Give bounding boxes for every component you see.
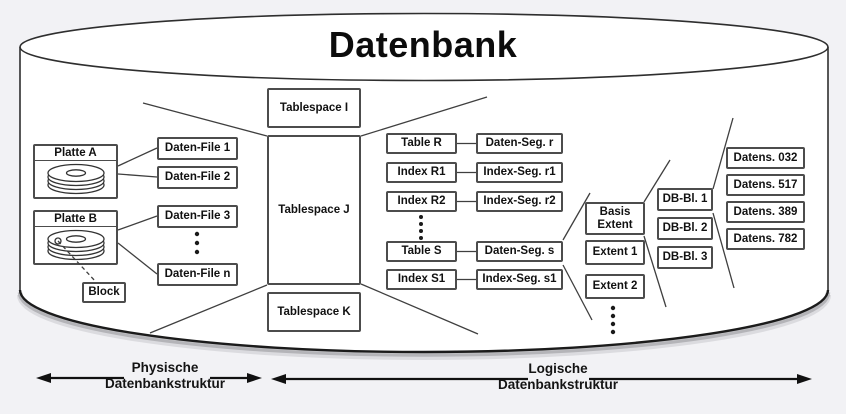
daten-file-1-box: Daten-File 1	[157, 137, 238, 160]
daten-file-2-box: Daten-File 2	[157, 166, 238, 189]
tablespace-j-box: Tablespace J	[267, 135, 361, 285]
platte-b-box: Platte B	[33, 210, 118, 265]
db-block-2-box: DB-Bl. 2	[657, 217, 713, 240]
physical-structure-label: Physische Datenbankstruktur	[65, 360, 265, 393]
record-389-box: Datens. 389	[726, 201, 805, 223]
table-r-box: Table R	[386, 133, 457, 154]
index-seg-s1-box: Index-Seg. s1	[476, 269, 563, 290]
disk-platter-icon	[35, 161, 116, 197]
extent-1-box: Extent 1	[585, 240, 645, 265]
index-r2-box: Index R2	[386, 191, 457, 212]
platte-a-label: Platte A	[35, 146, 116, 161]
daten-seg-s-box: Daten-Seg. s	[476, 241, 563, 262]
index-seg-r2-box: Index-Seg. r2	[476, 191, 563, 212]
daten-file-n-box: Daten-File n	[157, 263, 238, 286]
extent-ellipsis-icon	[611, 306, 615, 334]
tablespace-k-box: Tablespace K	[267, 292, 361, 332]
index-r1-box: Index R1	[386, 162, 457, 183]
extent-2-box: Extent 2	[585, 274, 645, 299]
record-517-box: Datens. 517	[726, 174, 805, 196]
diagram-stage: Datenbank Platte A Platte B	[0, 0, 846, 414]
index-seg-r1-box: Index-Seg. r1	[476, 162, 563, 183]
tablespace-i-box: Tablespace I	[267, 88, 361, 128]
db-block-1-box: DB-Bl. 1	[657, 188, 713, 211]
disk-platter-marked-icon	[35, 227, 116, 263]
daten-file-3-box: Daten-File 3	[157, 205, 238, 228]
basis-extent-box: Basis Extent	[585, 202, 645, 235]
table-group-ellipsis-icon	[419, 215, 423, 240]
db-block-3-box: DB-Bl. 3	[657, 246, 713, 269]
platte-b-label: Platte B	[35, 212, 116, 227]
block-box: Block	[82, 282, 126, 303]
record-032-box: Datens. 032	[726, 147, 805, 169]
diagram-title: Datenbank	[0, 24, 846, 66]
platte-a-box: Platte A	[33, 144, 118, 199]
record-782-box: Datens. 782	[726, 228, 805, 250]
index-s1-box: Index S1	[386, 269, 457, 290]
logical-structure-label: Logische Datenbankstruktur	[458, 361, 658, 394]
daten-seg-r-box: Daten-Seg. r	[476, 133, 563, 154]
table-s-box: Table S	[386, 241, 457, 262]
daten-file-ellipsis-icon	[195, 232, 199, 254]
